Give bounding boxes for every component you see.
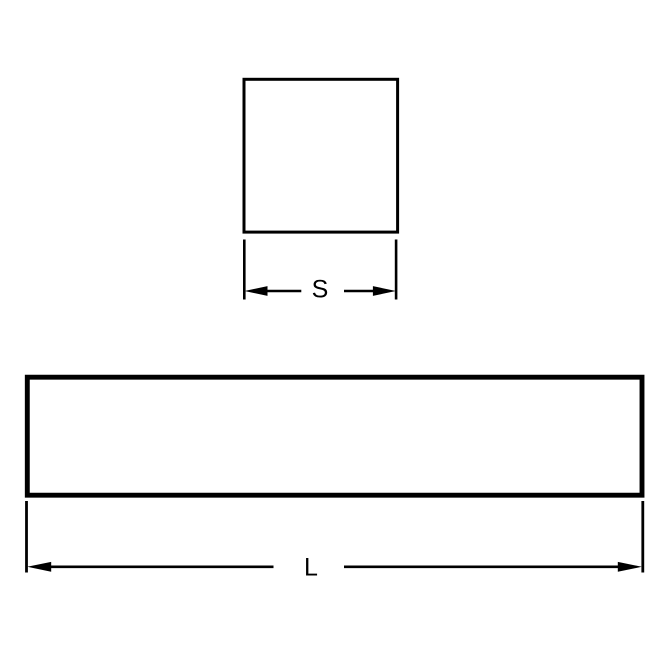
- svg-text:S: S: [312, 275, 329, 303]
- svg-text:L: L: [304, 554, 318, 582]
